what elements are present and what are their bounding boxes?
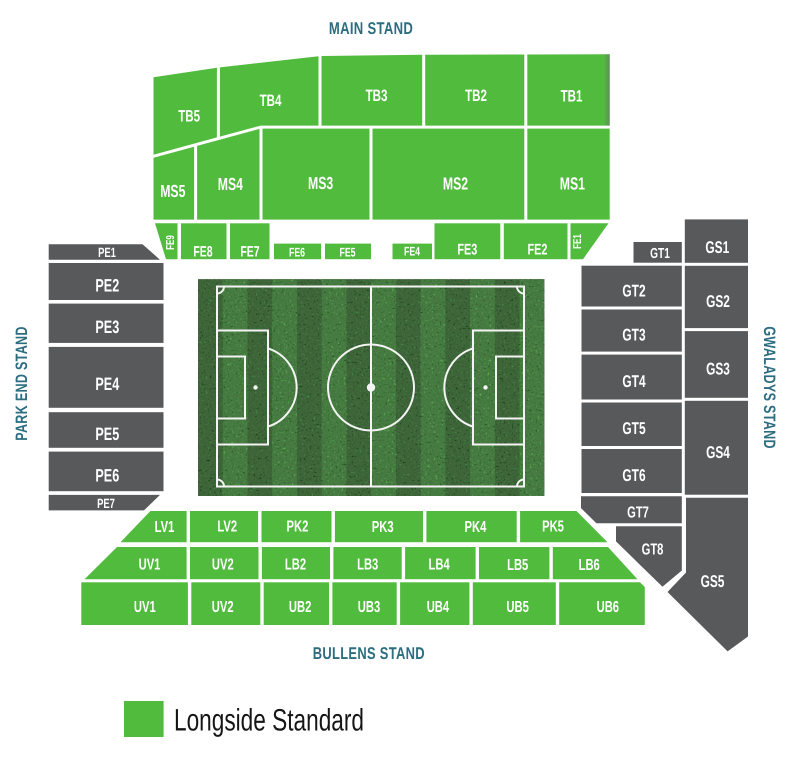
svg-text:UV1: UV1 (139, 557, 161, 574)
svg-text:MS4: MS4 (218, 174, 243, 194)
svg-text:UV2: UV2 (212, 599, 234, 616)
svg-text:GS5: GS5 (701, 572, 725, 591)
svg-text:PARK END STAND: PARK END STAND (13, 326, 31, 441)
svg-text:FE7: FE7 (240, 244, 259, 261)
svg-text:UV1: UV1 (134, 599, 156, 616)
svg-text:TB1: TB1 (561, 87, 583, 105)
svg-text:PK5: PK5 (542, 519, 564, 536)
svg-text:PE4: PE4 (95, 374, 119, 394)
svg-text:GS1: GS1 (705, 238, 729, 257)
svg-text:GWALADYS STAND: GWALADYS STAND (760, 326, 778, 448)
svg-text:PK3: PK3 (372, 519, 394, 536)
svg-text:LB5: LB5 (507, 557, 528, 574)
svg-text:UB4: UB4 (427, 599, 449, 616)
svg-text:FE4: FE4 (404, 244, 420, 258)
svg-text:PK4: PK4 (465, 519, 487, 536)
svg-text:MAIN STAND: MAIN STAND (329, 19, 413, 38)
svg-text:UV2: UV2 (212, 557, 234, 574)
svg-text:GT6: GT6 (622, 466, 645, 485)
svg-text:LB4: LB4 (429, 557, 450, 574)
svg-text:TB3: TB3 (366, 87, 388, 105)
svg-text:FE3: FE3 (457, 242, 477, 259)
svg-text:PK2: PK2 (287, 519, 309, 536)
svg-text:PE5: PE5 (95, 424, 119, 444)
svg-text:MS3: MS3 (308, 173, 333, 193)
svg-text:PE2: PE2 (95, 275, 119, 295)
svg-text:MS5: MS5 (160, 181, 185, 201)
svg-text:GT4: GT4 (622, 372, 646, 391)
svg-text:FE8: FE8 (193, 244, 212, 261)
svg-text:GT5: GT5 (622, 419, 645, 438)
svg-text:PE1: PE1 (98, 245, 116, 260)
svg-text:FE9: FE9 (165, 235, 177, 250)
svg-text:UB2: UB2 (289, 599, 311, 616)
svg-text:GT1: GT1 (650, 246, 670, 262)
svg-text:GT7: GT7 (627, 505, 649, 522)
svg-text:UB6: UB6 (597, 599, 619, 616)
svg-text:GS3: GS3 (706, 360, 730, 379)
svg-text:LB2: LB2 (285, 557, 306, 574)
svg-text:PE6: PE6 (95, 465, 119, 485)
svg-text:GS2: GS2 (706, 292, 730, 311)
svg-text:FE1: FE1 (572, 234, 584, 249)
svg-text:BULLENS STAND: BULLENS STAND (313, 644, 425, 663)
svg-text:LV1: LV1 (155, 519, 175, 536)
svg-text:UB3: UB3 (358, 599, 380, 616)
svg-text:GT3: GT3 (622, 326, 645, 345)
svg-text:MS1: MS1 (560, 174, 585, 194)
svg-text:MS2: MS2 (443, 174, 468, 194)
svg-text:GT8: GT8 (642, 542, 664, 559)
svg-text:TB5: TB5 (178, 108, 200, 126)
svg-text:GT2: GT2 (622, 282, 645, 301)
svg-text:GS4: GS4 (706, 443, 730, 462)
svg-text:LV2: LV2 (217, 519, 237, 536)
svg-text:LB3: LB3 (357, 557, 378, 574)
svg-text:TB4: TB4 (260, 92, 282, 110)
svg-text:FE6: FE6 (289, 245, 305, 259)
svg-text:FE5: FE5 (339, 245, 355, 259)
svg-text:UB5: UB5 (506, 599, 528, 616)
svg-text:Longside Standard: Longside Standard (174, 703, 364, 738)
svg-text:PE7: PE7 (97, 496, 115, 511)
svg-text:LB6: LB6 (579, 557, 600, 574)
svg-text:TB2: TB2 (465, 87, 487, 105)
svg-text:FE2: FE2 (528, 242, 548, 259)
svg-text:PE3: PE3 (95, 317, 119, 337)
